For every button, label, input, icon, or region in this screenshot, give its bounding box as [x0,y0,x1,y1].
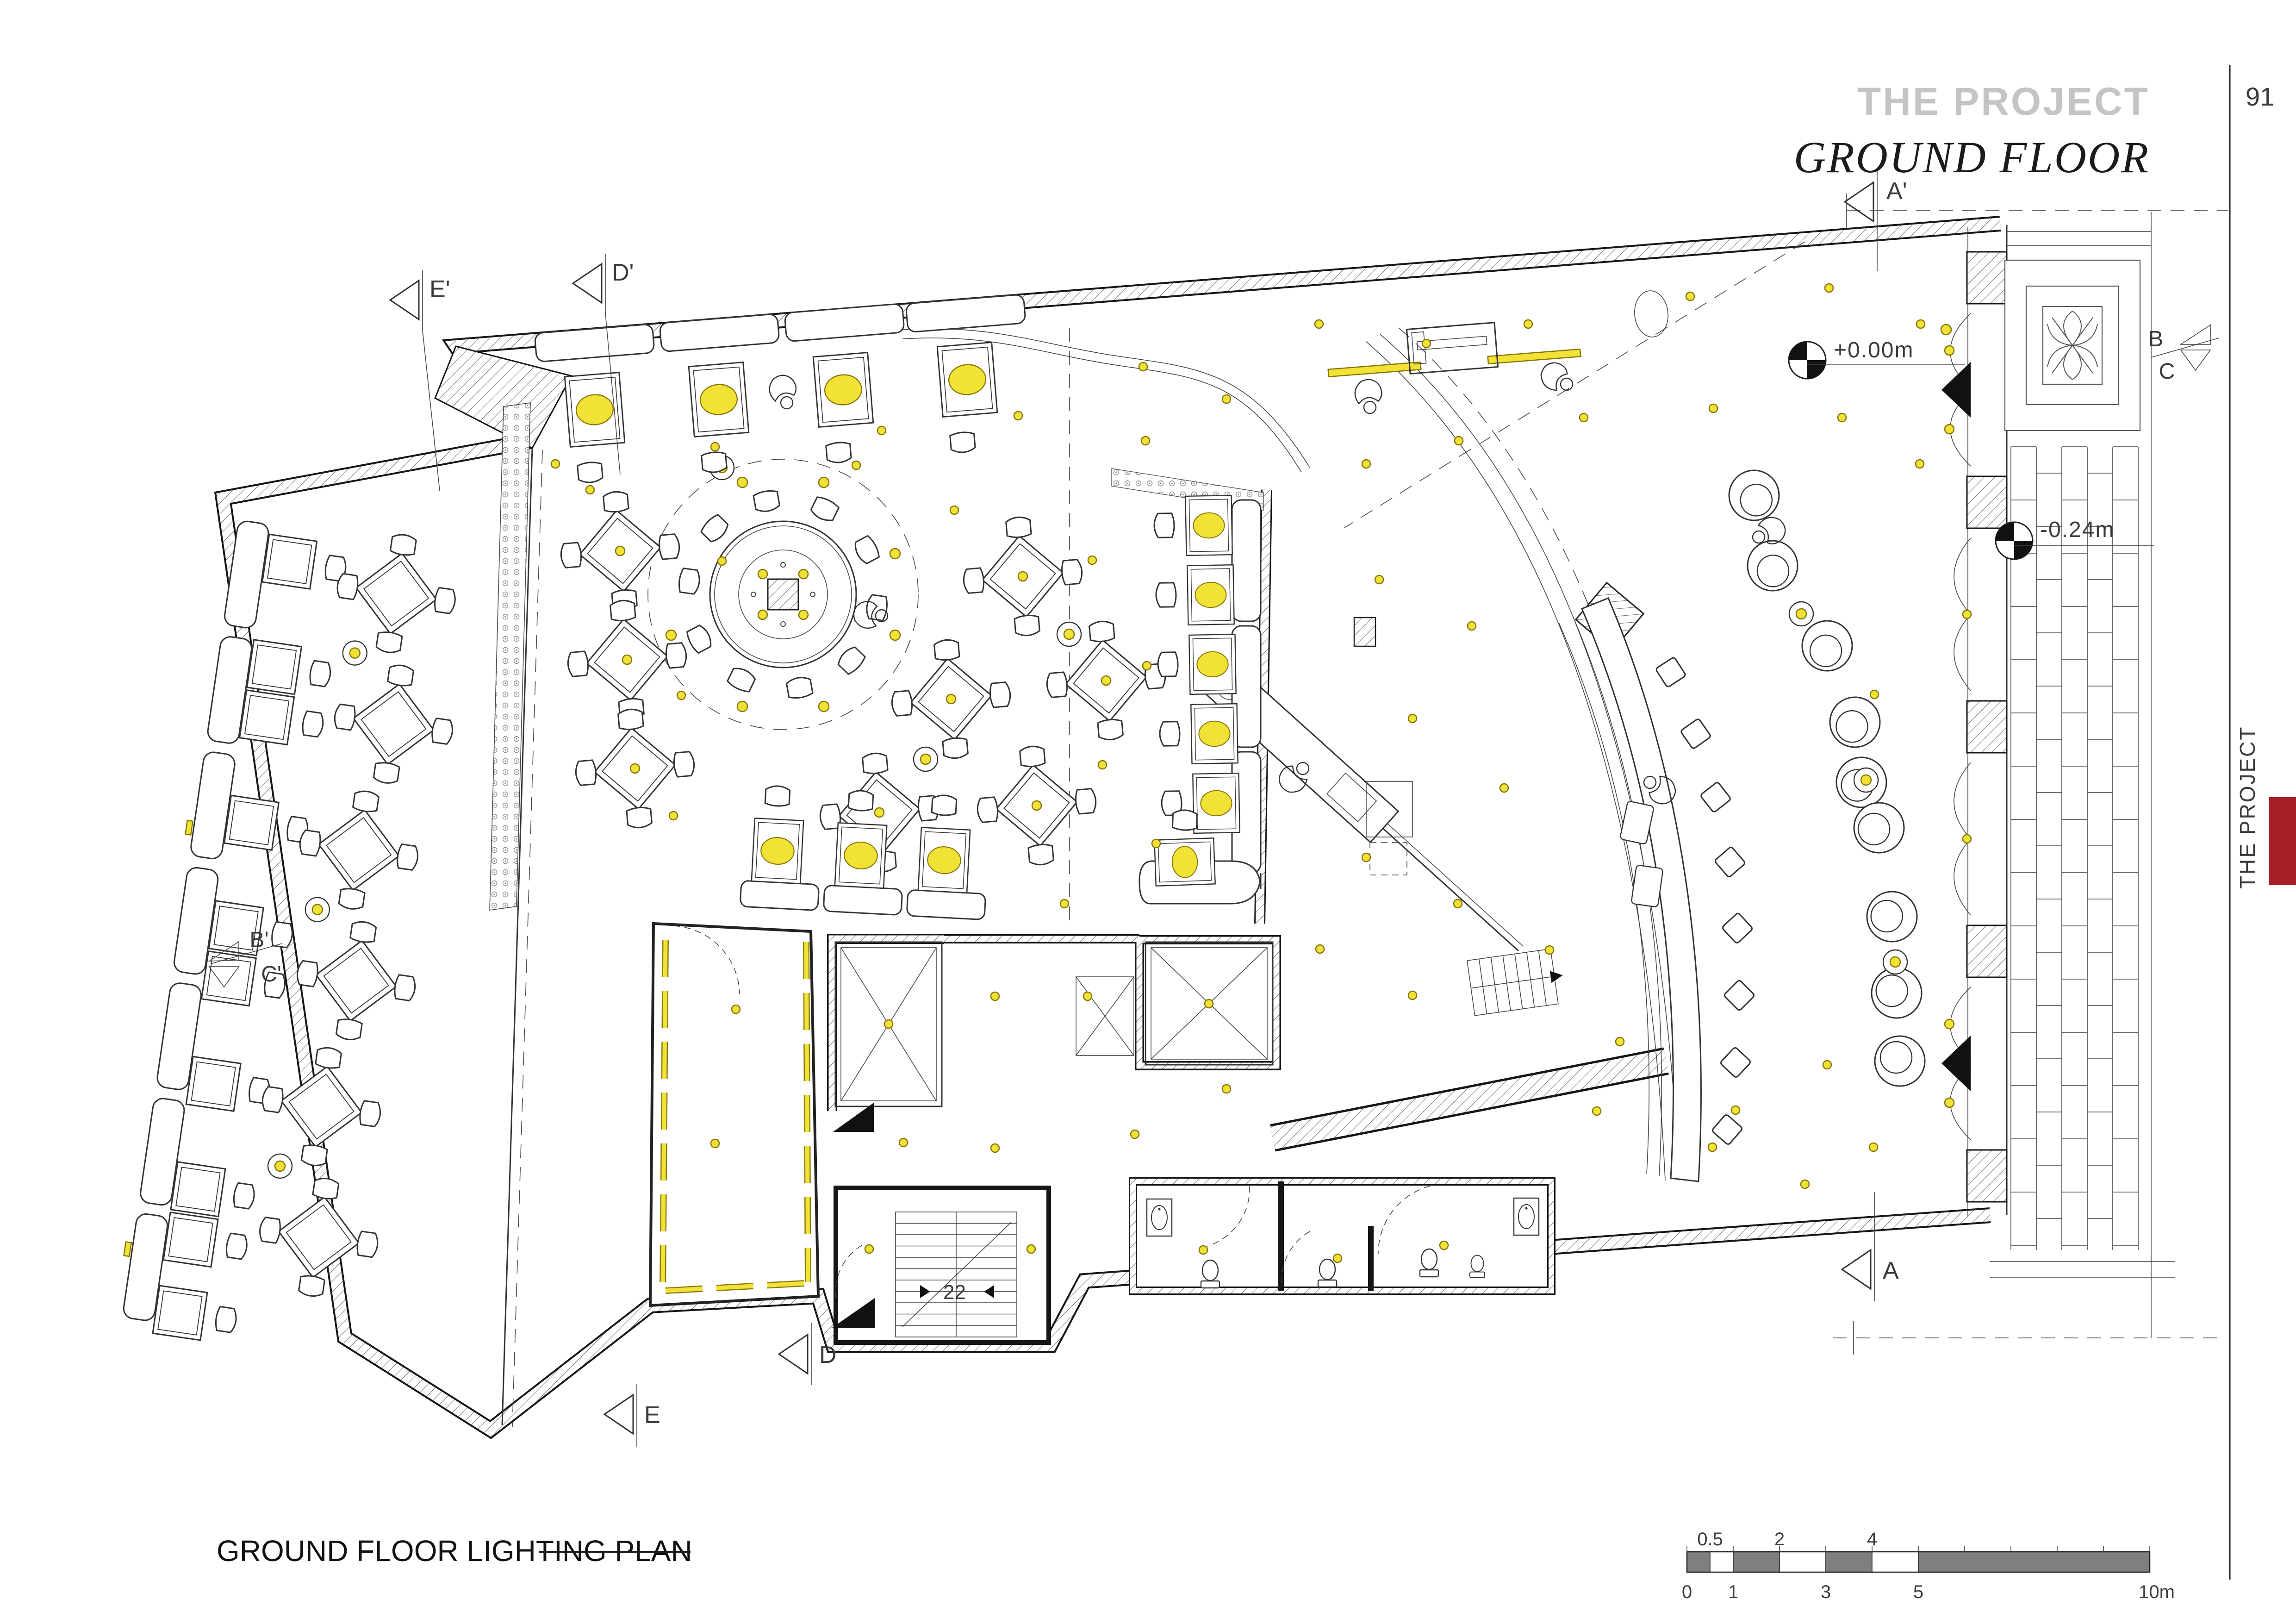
side-table [1057,622,1081,646]
downlight [1098,761,1107,769]
downlight [1014,412,1022,420]
downlight [1870,690,1879,699]
chair [1156,583,1176,607]
side-tab-label: THE PROJECT [2235,726,2259,889]
downlight [1316,945,1324,953]
section-label: C [2159,359,2175,384]
chair [1154,513,1175,538]
downlight [852,461,860,469]
banquette-bench [740,881,819,911]
building-envelope [223,224,2000,1430]
downlight [877,426,886,435]
downlight [1333,1254,1342,1262]
facade-pilaster [1967,925,2007,977]
downlight [1408,714,1417,723]
scale-segment [1687,1552,1710,1572]
table-with-pendant [1189,634,1236,694]
downlight [1315,320,1323,328]
pendant-light [946,694,956,704]
downlight [551,460,560,468]
scale-label: 2 [1774,1529,1785,1549]
chair [848,790,873,812]
downlight [1580,413,1588,422]
downlight [1500,784,1508,792]
column [768,579,798,610]
entrance-light [1945,346,1954,355]
private-room [650,924,818,1305]
facade-pilaster [1967,701,2007,753]
side-table [1854,768,1878,792]
square-table [163,1212,218,1267]
downlight [865,1245,873,1253]
section-label: E' [429,276,450,303]
square-table [171,1162,225,1217]
downlight [711,1139,719,1148]
facade-pilaster [1967,476,2007,528]
side-table [914,747,938,771]
section-label: B' [249,928,268,952]
downlight [677,691,685,700]
scale-segment [1872,1552,1918,1572]
downlight [711,443,719,451]
table-with-pendant [1193,773,1239,833]
downlight [1823,1061,1831,1069]
downlight [1205,999,1213,1008]
downlight [718,557,726,565]
side-table [1789,602,1813,626]
paving-medallion [2005,260,2140,431]
square-table [247,640,302,694]
downlight [1869,1143,1878,1151]
downlight [1686,292,1694,300]
chair [932,795,957,816]
downlight [991,1144,999,1152]
banquette-bench [823,885,902,915]
downlight [732,1005,740,1013]
chair [214,1306,237,1333]
chair [701,451,727,473]
square-table [224,795,279,850]
facade-pilaster [1967,252,2007,304]
level-label: -0.24m [2040,518,2115,542]
square-table [262,534,317,589]
downlight [1027,1245,1035,1253]
portfolio-page: 22 +0.00m [0,0,2296,1624]
pendant-light [875,808,884,817]
section-label: A [1883,1257,1899,1284]
downlight [1708,1143,1717,1151]
table-with-pendant [813,353,873,427]
downlight [1199,1246,1207,1254]
scale-label: 0 [1682,1582,1692,1602]
red-chapter-tab [2269,797,2296,885]
chair [232,1183,255,1210]
pendant-light [1018,572,1027,581]
section-label: B [2148,327,2163,351]
table-with-pendant [689,362,749,437]
scale-label: 10m [2139,1582,2175,1602]
downlight [1408,991,1417,999]
downlight [899,1138,908,1147]
scale-segment [1918,1552,2150,1572]
facade-pilaster [1967,1150,2007,1202]
side-table [1883,950,1907,974]
page-subtitle: GROUND FLOOR [1794,132,2150,182]
scale-label: 5 [1913,1582,1923,1602]
chair [225,1233,248,1260]
scale-segment [1733,1552,1780,1572]
floor-plan-canvas: 22 +0.00m [0,0,2296,1624]
downlight [1524,320,1532,328]
downlight [1801,1180,1809,1188]
scale-bar: 0.5 2 4 0 1 3 5 10m [1682,1529,2175,1602]
downlight [1545,946,1554,954]
entrance-light [1945,425,1954,434]
downlight [1422,339,1431,348]
downlight [1152,839,1160,848]
scale-segment [1780,1552,1826,1572]
entrance-light [1945,1019,1954,1029]
banquette-bench [907,890,986,920]
downlight [1838,413,1846,422]
lounge-armchair [1875,1036,1925,1086]
page-number: 91 [2246,82,2274,111]
stair-riser-count: 22 [943,1281,966,1304]
downlight [1060,899,1069,908]
chair [765,786,790,807]
downlight [1593,1107,1601,1115]
niche-light [1963,835,1971,843]
table-with-pendant [1154,838,1215,886]
table-with-pendant [1185,495,1232,556]
wall-sconce-light [124,1242,131,1256]
chair [1172,810,1197,831]
table-with-pendant [565,373,625,447]
level-label: +0.00m [1834,338,1914,362]
downlight [1083,992,1092,1000]
square-table [186,1056,241,1111]
downlight [1141,437,1150,445]
table-with-pendant [752,818,803,883]
scale-segment [1826,1552,1872,1572]
pendant-light [1032,801,1041,810]
table-with-pendant [918,827,970,893]
table-with-pendant [835,823,887,888]
table-with-pendant [937,343,997,417]
chair [1160,722,1180,746]
downlight [669,812,678,820]
scale-label: 1 [1728,1582,1738,1602]
downlight [1362,853,1370,862]
chair [1158,652,1178,677]
square-table [201,951,256,1006]
scale-segment [1710,1552,1733,1572]
downlight [1916,460,1924,468]
pendant-light [630,764,640,773]
downlight [991,992,999,1000]
pendant-light [1101,676,1111,685]
scale-label: 4 [1867,1529,1877,1549]
scale-label: 3 [1821,1582,1831,1602]
downlight [884,1020,893,1028]
pendant-light [616,546,625,556]
square-table [240,690,294,745]
downlight [1139,362,1147,371]
downlight [1375,575,1383,584]
downlight [1088,556,1096,564]
downlight [1916,320,1925,328]
side-tab: THE PROJECT [2235,726,2296,889]
chair [577,462,603,483]
entrance-light [1945,1098,1954,1107]
chair [826,442,852,463]
chair [950,431,976,453]
downlight [1825,284,1833,292]
downlight [1709,404,1717,412]
table-with-pendant [1187,565,1234,625]
page-title: THE PROJECT [1857,80,2150,123]
square-table [153,1286,207,1340]
downlight [1616,1037,1624,1046]
side-table [267,1152,294,1180]
wall-sconce-light [185,820,193,835]
section-label: E [644,1402,660,1429]
downlight [1362,460,1370,468]
downlight [1468,622,1476,630]
downlight [1143,662,1151,670]
booth-bench [1232,500,1261,621]
section-label: D' [612,259,634,286]
section-label: D [819,1342,837,1368]
downlight [1222,1085,1231,1093]
downlight [1455,437,1463,445]
section-label: C' [261,962,281,987]
downlight [1731,1106,1740,1114]
downlight [1440,1241,1448,1249]
pendant-light [622,655,632,664]
downlight [1454,899,1462,908]
downlight [586,486,594,494]
downlight [1222,395,1231,403]
plan-title-block: GROUND FLOOR LIGHTING PLAN [217,1534,692,1568]
niche-light [1963,610,1971,618]
table-with-pendant [1191,704,1238,764]
scale-label: 0.5 [1697,1529,1723,1549]
downlight [950,506,958,514]
downlight [1131,1130,1139,1138]
